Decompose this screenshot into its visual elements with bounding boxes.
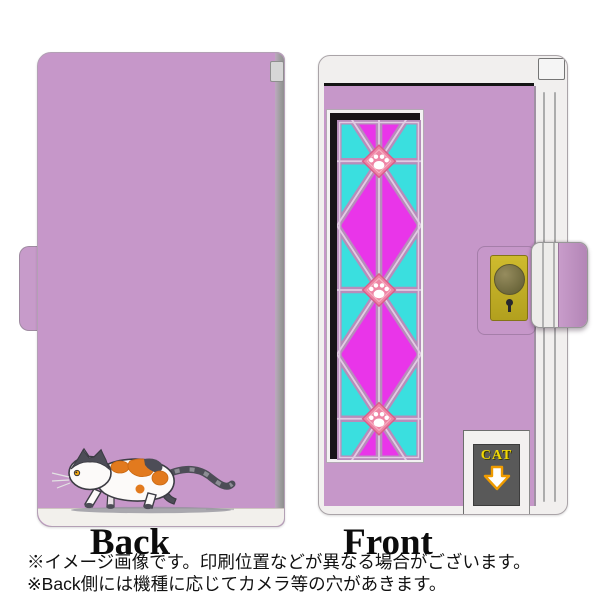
- calico-cat-icon: [56, 447, 238, 519]
- stained-glass-asanoha-pattern: [337, 120, 421, 460]
- cat-sign-label: CAT: [474, 448, 519, 464]
- cat-door-sign: CAT: [473, 444, 520, 506]
- back-hinge-square: [270, 61, 284, 82]
- door-lock-plate: [490, 255, 528, 321]
- cat-door-frame: CAT: [463, 430, 530, 514]
- disclaimer-line-2: ※Back側には機種に応じてカメラ等の穴があきます。: [27, 573, 587, 595]
- clasp-strap-tip: [558, 243, 587, 327]
- back-spine-edge: [275, 53, 284, 526]
- disclaimer-notes: ※イメージ画像です。印刷位置などが異なる場合がございます。 ※Back側には機種…: [27, 551, 587, 595]
- case-back-cover: [37, 52, 285, 527]
- magnetic-clasp-strap: [531, 242, 588, 328]
- door-knob-icon: [494, 264, 525, 295]
- keyhole-icon: [508, 304, 511, 312]
- down-arrow-icon: [482, 465, 512, 491]
- spine-ridge: [542, 243, 544, 327]
- door-window-frame: [326, 109, 424, 463]
- window-inner-frame: [330, 113, 420, 459]
- spine-ridge: [553, 243, 555, 327]
- front-corner-square: [538, 58, 565, 80]
- disclaimer-line-1: ※イメージ画像です。印刷位置などが異なる場合がございます。: [27, 551, 587, 573]
